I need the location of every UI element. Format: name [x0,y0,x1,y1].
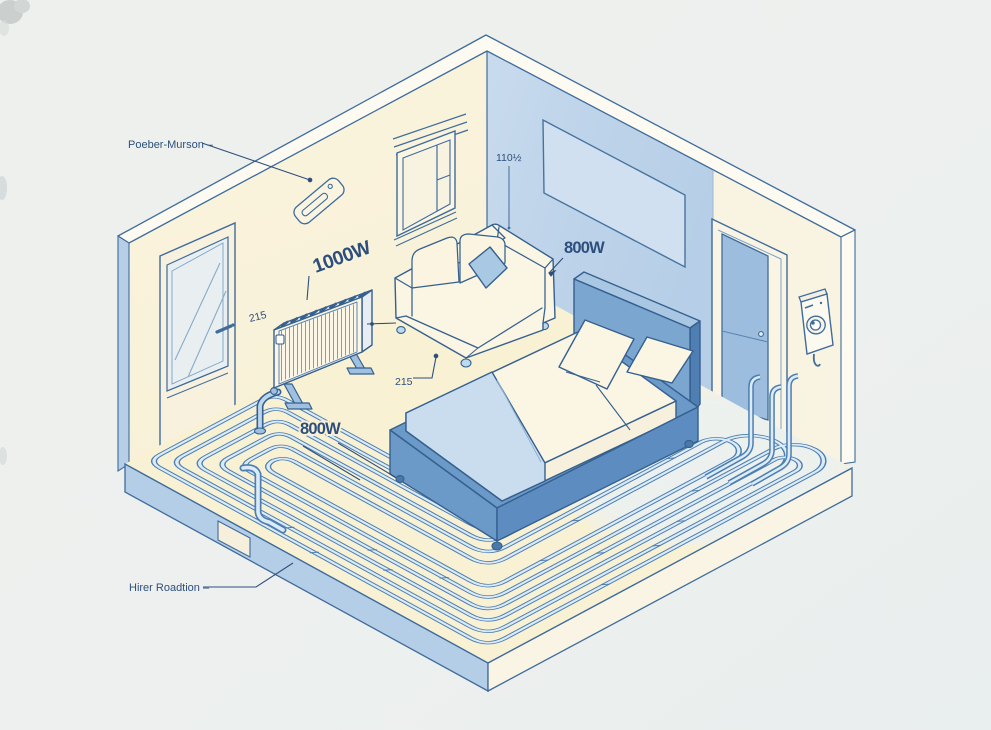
svg-text:215: 215 [395,376,413,388]
svg-text:Poeber-Murson –: Poeber-Murson – [128,139,214,151]
svg-text:110½: 110½ [496,152,522,164]
svg-text:800W: 800W [564,239,605,257]
svg-text:800W: 800W [300,420,341,438]
svg-text:Hirer Roadtion –: Hirer Roadtion – [129,582,210,594]
